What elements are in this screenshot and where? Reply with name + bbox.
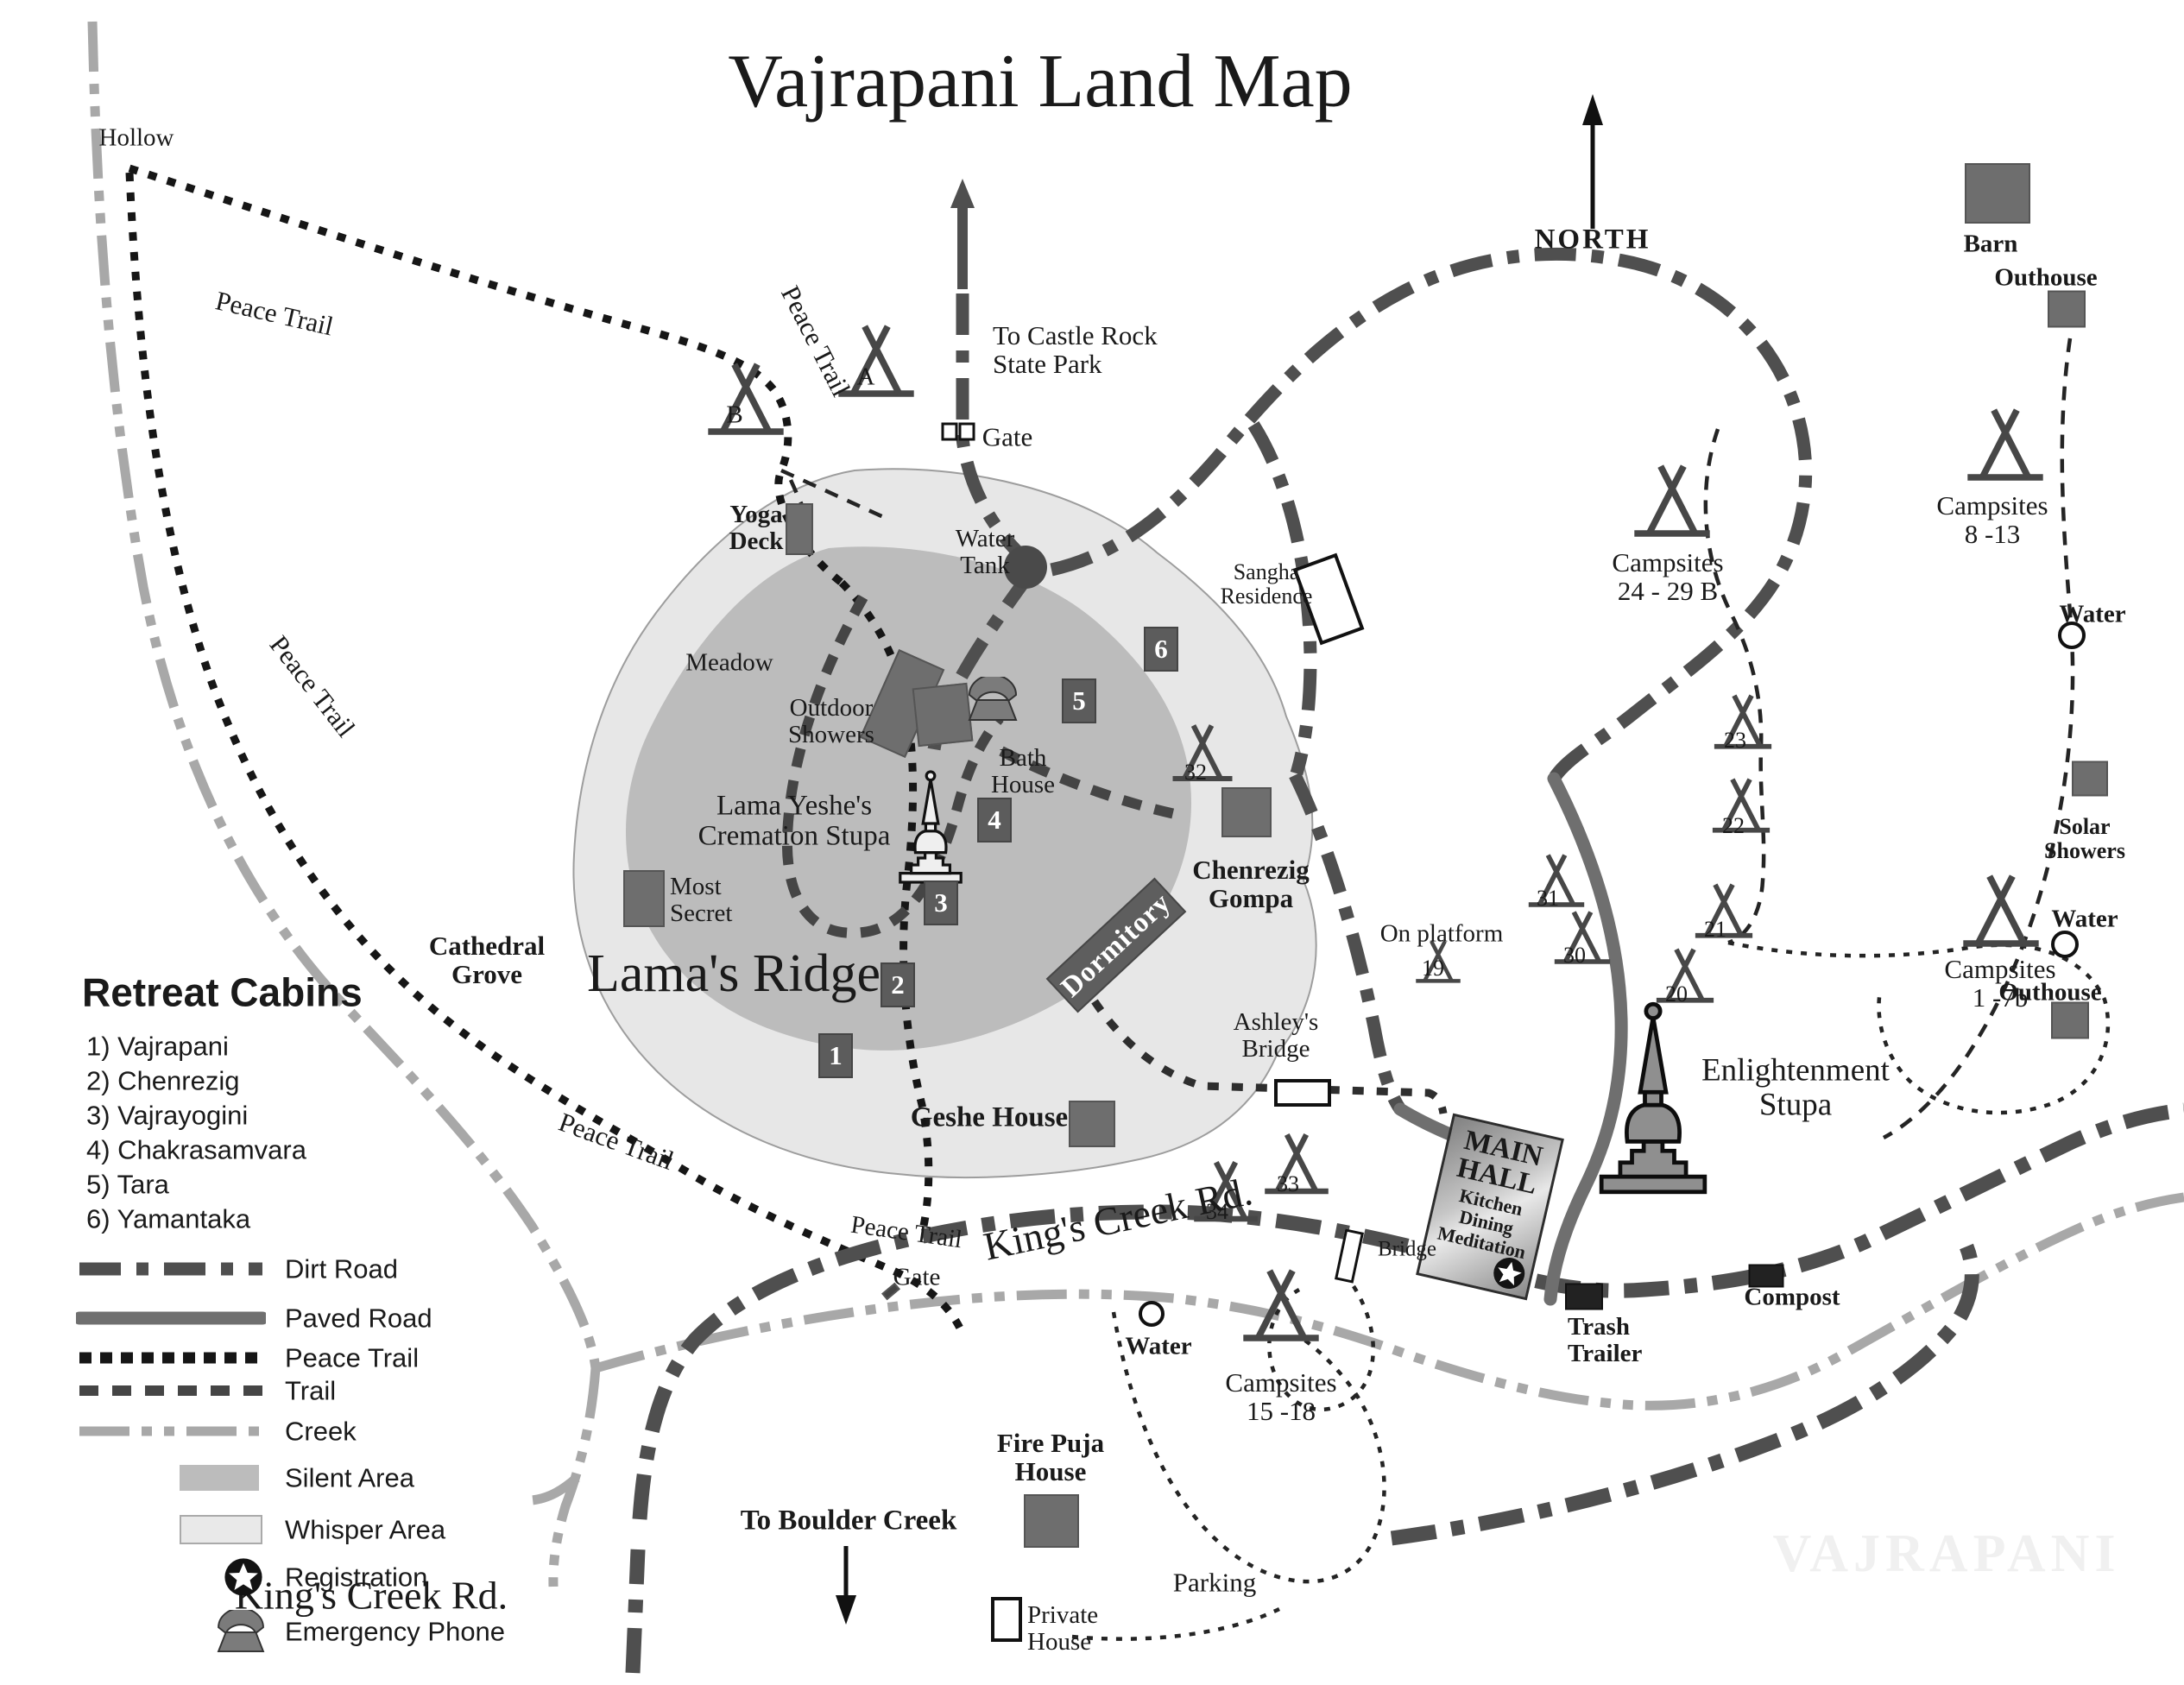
campsites-24-29b-tent-icon <box>1632 460 1714 542</box>
legend-cabin-item: 4) Chakrasamvara <box>86 1135 306 1164</box>
castle-rock-arrow-icon <box>941 177 984 293</box>
boulder-creek-arrow-icon <box>824 1542 868 1628</box>
vajrapani-land-map: Vajrapani Land Map NORTH <box>0 0 2184 1685</box>
north-label: NORTH <box>1535 224 1651 255</box>
legend-cabin-item: 2) Chenrezig <box>86 1066 239 1095</box>
sangha-residence-label: Sangha Residence <box>1221 560 1313 609</box>
cabin-3-marker: 3 <box>924 880 958 925</box>
outhouse-east-building <box>2051 1002 2089 1039</box>
legend-whisper-area-swatch <box>180 1515 262 1544</box>
castle-rock-label: To Castle Rock State Park <box>993 321 1158 378</box>
campsites-15-18-label: Campsites 15 -18 <box>1225 1368 1336 1425</box>
legend-cabin-item: 5) Tara <box>86 1170 169 1198</box>
creek-tail <box>532 1368 596 1587</box>
map-title: Vajrapani Land Map <box>728 41 1352 123</box>
campsites-8-13-tent-icon <box>1965 404 2047 486</box>
cabin-6-marker: 6 <box>1144 627 1178 672</box>
lamas-ridge-label: Lama's Ridge <box>587 945 881 1002</box>
gate-north-icon <box>942 423 958 441</box>
legend-cabin-item: 1) Vajrapani <box>86 1032 229 1060</box>
cabin-1-marker: 1 <box>818 1033 853 1078</box>
campsites-1-7b-tent-icon <box>1960 870 2042 952</box>
water-label: Water <box>2051 906 2118 932</box>
trash-trailer-building <box>1565 1284 1603 1310</box>
yoga-deck-label: Yoga Deck <box>729 502 784 555</box>
legend-dirt-road-swatch <box>76 1258 266 1280</box>
on-platform-label: On platform <box>1380 920 1504 947</box>
bath-house-label: Bath House <box>991 745 1055 798</box>
private-house-building <box>991 1597 1022 1642</box>
most-secret-building <box>623 870 665 927</box>
campsite-23-label: 23 <box>1724 729 1746 753</box>
cabin-2-marker: 2 <box>881 962 915 1007</box>
water-label: Water <box>2059 601 2125 628</box>
water-label: Water <box>1125 1333 1191 1360</box>
legend-registration-label: Registration <box>285 1562 427 1591</box>
campsites-24-29-trail <box>1706 429 1764 943</box>
legend-emergency-phone-label: Emergency Phone <box>285 1617 505 1645</box>
campsite-22-label: 22 <box>1722 814 1745 838</box>
enlightenment-stupa-label: Enlightenment Stupa <box>1701 1053 1890 1121</box>
campsites-1-7b-label: Campsites 1 -7b <box>1944 955 2055 1012</box>
ashleys-bridge-label: Ashley's Bridge <box>1234 1009 1319 1063</box>
enlightenment-stupa-icon <box>1594 998 1712 1198</box>
fire-puja-house-label: Fire Puja House <box>997 1429 1104 1486</box>
geshe-house-label: Geshe House <box>911 1102 1068 1133</box>
creek-south <box>596 1197 2184 1405</box>
campsite-32-label: 32 <box>1184 760 1207 785</box>
legend-creek-swatch <box>76 1420 266 1442</box>
cabin-5-marker: 5 <box>1062 678 1096 723</box>
campsite-b-tent-icon <box>705 358 787 440</box>
watermark-text: VAJRAPANI <box>1772 1525 2120 1582</box>
legend-silent-area-swatch <box>180 1465 259 1491</box>
compost-label: Compost <box>1744 1284 1840 1310</box>
legend-emergency-phone-icon <box>214 1610 268 1653</box>
campsite-a-label: A <box>857 363 875 390</box>
cathedral-grove-label: Cathedral Grove <box>429 931 545 988</box>
legend-registration-star-icon <box>223 1556 264 1598</box>
legend-trail-swatch <box>76 1379 266 1402</box>
campsite-20-label: 20 <box>1665 982 1688 1007</box>
private-house-label: Private House <box>1027 1602 1098 1656</box>
bridge-label: Bridge <box>1378 1239 1436 1262</box>
water-tank-label: Water Tank <box>956 526 1015 579</box>
legend-peace-trail-label: Peace Trail <box>285 1343 419 1372</box>
geshe-house-building <box>1069 1101 1115 1147</box>
most-secret-label: Most Secret <box>670 874 732 927</box>
registration-star-icon <box>1488 1253 1530 1294</box>
outhouse-north-building <box>2048 291 2086 328</box>
creek-west <box>92 22 596 1368</box>
private-house-trail <box>1072 1609 1279 1639</box>
meadow-label: Meadow <box>685 649 773 676</box>
gate-label: Gate <box>893 1264 941 1291</box>
hollow-label: Hollow <box>99 124 174 151</box>
boulder-creek-label: To Boulder Creek <box>741 1505 957 1536</box>
outhouse-label: Outhouse <box>1994 264 2097 291</box>
campsites-8-13-label: Campsites 8 -13 <box>1936 491 2048 548</box>
chenrezig-gompa-building <box>1221 787 1272 837</box>
campsites-15-18-tent-icon <box>1240 1265 1322 1347</box>
campsite-21-label: 21 <box>1704 918 1726 942</box>
outdoor-showers-label: Outdoor Showers <box>788 695 874 748</box>
fire-puja-house-building <box>1024 1494 1079 1548</box>
campsite-33-label: 33 <box>1277 1172 1299 1196</box>
campsite-19-label: 19 <box>1422 956 1444 981</box>
trash-trailer-label: Trash Trailer <box>1568 1314 1642 1367</box>
yoga-deck-building <box>786 503 813 555</box>
cremation-stupa-icon <box>896 768 965 886</box>
campsites-24-29b-label: Campsites 24 - 29 B <box>1612 548 1723 605</box>
water-point-icon <box>1139 1301 1165 1327</box>
chenrezig-gompa-label: Chenrezig Gompa <box>1192 855 1309 912</box>
solar-showers-building <box>2072 761 2108 797</box>
cremation-stupa-label: Lama Yeshe's Cremation Stupa <box>698 792 891 853</box>
parking-label: Parking <box>1173 1568 1256 1596</box>
legend-whisper-area-label: Whisper Area <box>285 1515 445 1543</box>
legend-creek-label: Creek <box>285 1417 357 1445</box>
gate-label: Gate <box>982 422 1033 451</box>
campsite-30-label: 30 <box>1563 943 1586 968</box>
emergency-phone-icon <box>965 677 1020 722</box>
legend-cabin-item: 3) Vajrayogini <box>86 1101 248 1129</box>
legend-paved-road-swatch <box>76 1307 266 1329</box>
legend-trail-label: Trail <box>285 1376 336 1404</box>
north-arrow-icon <box>1571 91 1614 246</box>
ashleys-bridge-structure <box>1274 1079 1331 1107</box>
cabin-4-marker: 4 <box>977 798 1012 842</box>
barn-label: Barn <box>1964 230 2018 257</box>
legend-silent-area-label: Silent Area <box>285 1463 414 1492</box>
legend-cabins-title: Retreat Cabins <box>82 971 363 1013</box>
campsite-31-label: 31 <box>1537 887 1559 911</box>
barn-building <box>1965 163 2030 224</box>
legend-cabin-item: 6) Yamantaka <box>86 1204 250 1233</box>
legend-paved-road-label: Paved Road <box>285 1303 432 1332</box>
legend-dirt-road-label: Dirt Road <box>285 1254 398 1283</box>
gate-north-icon <box>959 423 975 441</box>
bath-house-building <box>912 683 974 747</box>
solar-showers-label: Solar Showers <box>2044 815 2125 863</box>
campsite-b-label: B <box>726 401 742 428</box>
legend-peace-trail-swatch <box>76 1347 266 1369</box>
